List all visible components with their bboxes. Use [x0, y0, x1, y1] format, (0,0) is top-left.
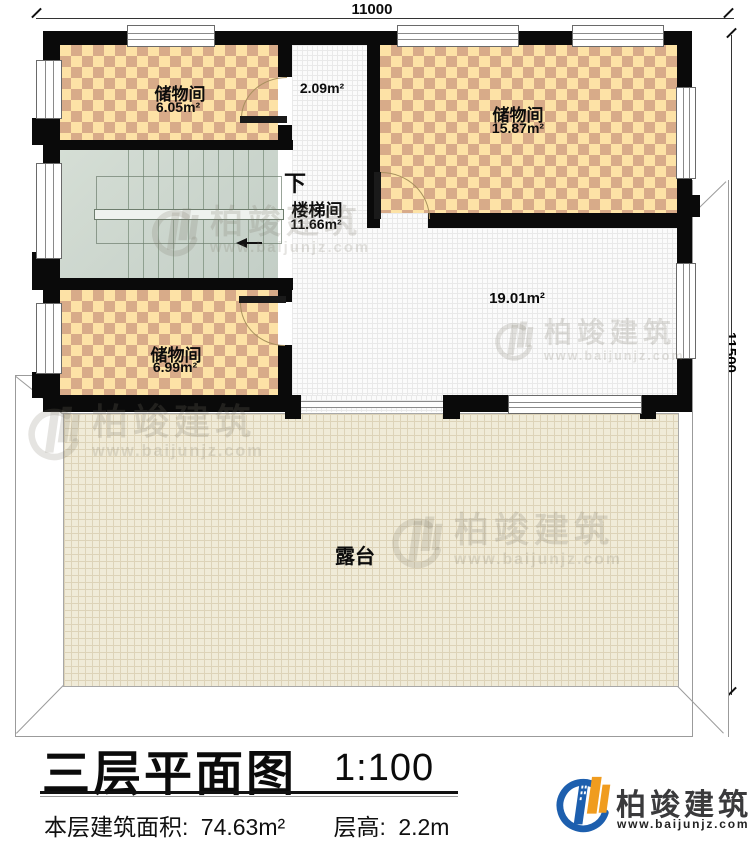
- window: [36, 60, 62, 119]
- brand-logo-icon: [552, 772, 614, 834]
- title-underline: [40, 791, 458, 794]
- floor-area-value: 74.63m²: [201, 814, 285, 840]
- room-area-label: 6.05m²: [156, 99, 200, 115]
- terrace-parapet-right: [692, 180, 729, 737]
- dimension-label-top: 11000: [352, 1, 393, 18]
- open-area-floor: [292, 213, 677, 395]
- floor-plan-sheet: 11000 11500: [0, 0, 750, 849]
- window: [508, 395, 642, 414]
- wall-pier: [32, 372, 43, 398]
- stair-handrail: [94, 209, 284, 220]
- room-area-label: 19.01m²: [489, 290, 545, 307]
- window: [676, 87, 696, 179]
- room-area-label: 15.87m²: [492, 120, 544, 136]
- door-leaf: [374, 172, 381, 219]
- wall-pier: [32, 118, 43, 145]
- floor-area-label: 本层建筑面积:: [44, 814, 188, 840]
- floor-height-label: 层高:: [334, 814, 386, 840]
- room-label: 露台: [335, 540, 375, 569]
- dimension-tick: [31, 8, 42, 19]
- drawing-scale: 1:100: [334, 747, 434, 790]
- window: [397, 25, 519, 47]
- room-area-label: 2.09m²: [300, 80, 344, 96]
- wall-pier: [692, 195, 700, 217]
- sliding-door: [301, 401, 443, 408]
- wall: [278, 345, 292, 395]
- wall: [278, 31, 292, 77]
- title-underline-thin: [40, 796, 458, 797]
- window: [36, 163, 62, 259]
- wall: [278, 125, 292, 150]
- window: [127, 25, 215, 47]
- room-area-label: 6.99m²: [153, 359, 197, 375]
- wall: [428, 213, 677, 228]
- dimension-tick: [723, 8, 734, 19]
- window: [676, 263, 696, 359]
- wall: [43, 140, 293, 150]
- window: [36, 303, 62, 374]
- wall-pier: [443, 412, 460, 419]
- stair-direction-arrow-tail: [246, 242, 262, 244]
- window: [572, 25, 664, 47]
- wall-pier: [285, 412, 301, 419]
- brand-url: www.baijunjz.com: [617, 817, 749, 831]
- stair-direction-label: 下: [284, 166, 306, 198]
- wall: [43, 278, 293, 290]
- door-leaf: [239, 296, 286, 303]
- wall-pier: [640, 412, 656, 419]
- floor-height-value: 2.2m: [398, 814, 449, 840]
- door-leaf: [240, 116, 287, 123]
- room-area-label: 11.66m²: [290, 216, 341, 232]
- dimension-line-top: [36, 18, 734, 19]
- floor-info: 本层建筑面积: 74.63m² 层高: 2.2m: [44, 808, 449, 842]
